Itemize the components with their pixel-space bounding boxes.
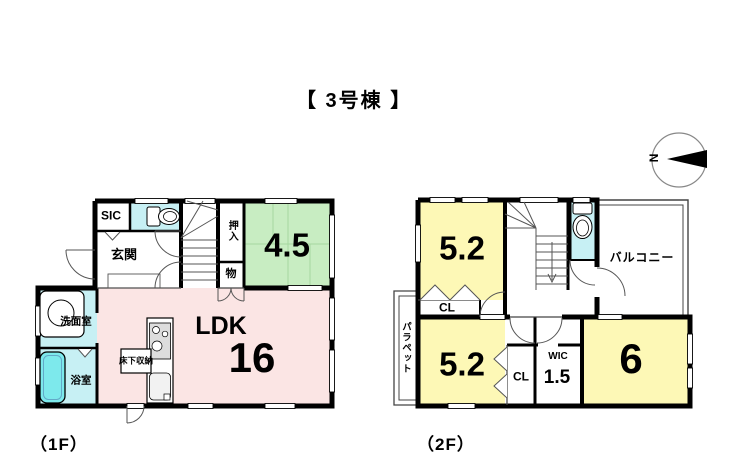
floor2-fixtures xyxy=(573,203,592,239)
label-parapet: パラペット xyxy=(400,322,410,375)
label-closet1: CL xyxy=(439,302,455,315)
floor1-caption: （1F） xyxy=(30,430,88,455)
room-label-oshiire: 押入 xyxy=(226,220,237,242)
room-label-genkan: 玄関 xyxy=(111,248,137,262)
room-size-bedroom2: 5.2 xyxy=(439,348,485,383)
toilet-door xyxy=(155,231,181,257)
floor1-stairs-icon xyxy=(181,201,218,280)
compass-north-label: N xyxy=(646,154,660,163)
compass-icon: N xyxy=(645,128,715,192)
floorplan-page: 【 3号棟 】 N xyxy=(0,0,740,469)
label-closet2: CL xyxy=(513,371,529,384)
genkan-folding-door xyxy=(105,232,120,240)
room-label-bathroom: 浴室 xyxy=(71,375,92,386)
room-label-mono: 物 xyxy=(226,269,237,281)
ldk-room xyxy=(97,288,332,406)
room-size-tatami: 4.5 xyxy=(264,229,310,264)
label-wic: WIC xyxy=(548,352,567,363)
page-title: 【 3号棟 】 xyxy=(296,84,412,113)
floor1-plan: SIC 玄関 押入 物 4.5 LDK 16 洗面室 浴室 床下収納 xyxy=(35,198,337,430)
room-size-ldk: 16 xyxy=(229,336,276,380)
room-size-bedroom3: 6 xyxy=(619,337,642,381)
hall-door xyxy=(155,262,181,288)
balcony-door xyxy=(597,268,625,296)
size-wic: 1.5 xyxy=(544,368,570,388)
room-label-washroom: 洗面室 xyxy=(60,316,92,327)
compass-arrow xyxy=(667,150,707,168)
label-balcony: バルコニー xyxy=(610,252,675,265)
room-size-bedroom1: 5.2 xyxy=(439,232,485,267)
floor2-caption: （2F） xyxy=(417,430,475,455)
hall-door-left xyxy=(510,318,535,343)
genkan-step xyxy=(108,274,160,288)
toilet2-door xyxy=(570,260,595,285)
entrance-door xyxy=(66,250,95,279)
hall-door-right xyxy=(537,318,562,343)
floor2-plan-svg xyxy=(388,196,693,414)
room-label-sic: SIC xyxy=(101,210,121,223)
floor2-plan: 5.2 CL バルコニー パラペット 5.2 CL WIC 1.5 6 xyxy=(388,196,693,414)
floor2-stairs-icon xyxy=(505,202,568,290)
label-underfloor-storage: 床下収納 xyxy=(119,357,153,366)
toilet2-tank-icon xyxy=(573,203,592,214)
